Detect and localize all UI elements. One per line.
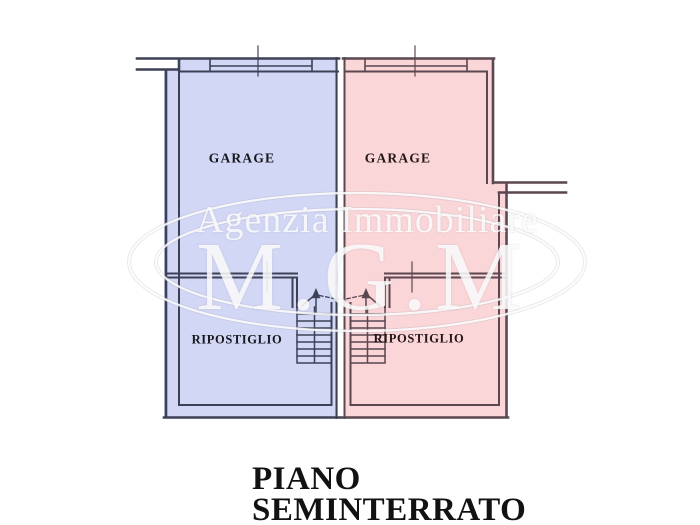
storage-label-right: RIPOSTIGLIO xyxy=(374,332,465,346)
unit-left-fill xyxy=(164,58,338,418)
garage-label-left: GARAGE xyxy=(209,151,275,166)
garage-label-right: GARAGE xyxy=(365,151,431,166)
floor-title-line2: SEMINTERRATO xyxy=(252,495,526,525)
unit-right: GARAGE RIPOSTIGLIO xyxy=(342,46,566,418)
floorplan-drawing: GARAGE RIPOSTIGLIO xyxy=(0,0,700,525)
unit-right-fill xyxy=(344,58,505,418)
unit-left: GARAGE RIPOSTIGLIO xyxy=(137,46,340,418)
floorplan-document: GARAGE RIPOSTIGLIO xyxy=(0,0,700,525)
storage-label-left: RIPOSTIGLIO xyxy=(192,333,283,347)
floor-title-line1: PIANO xyxy=(252,464,526,495)
floor-title: PIANO SEMINTERRATO xyxy=(252,464,526,525)
